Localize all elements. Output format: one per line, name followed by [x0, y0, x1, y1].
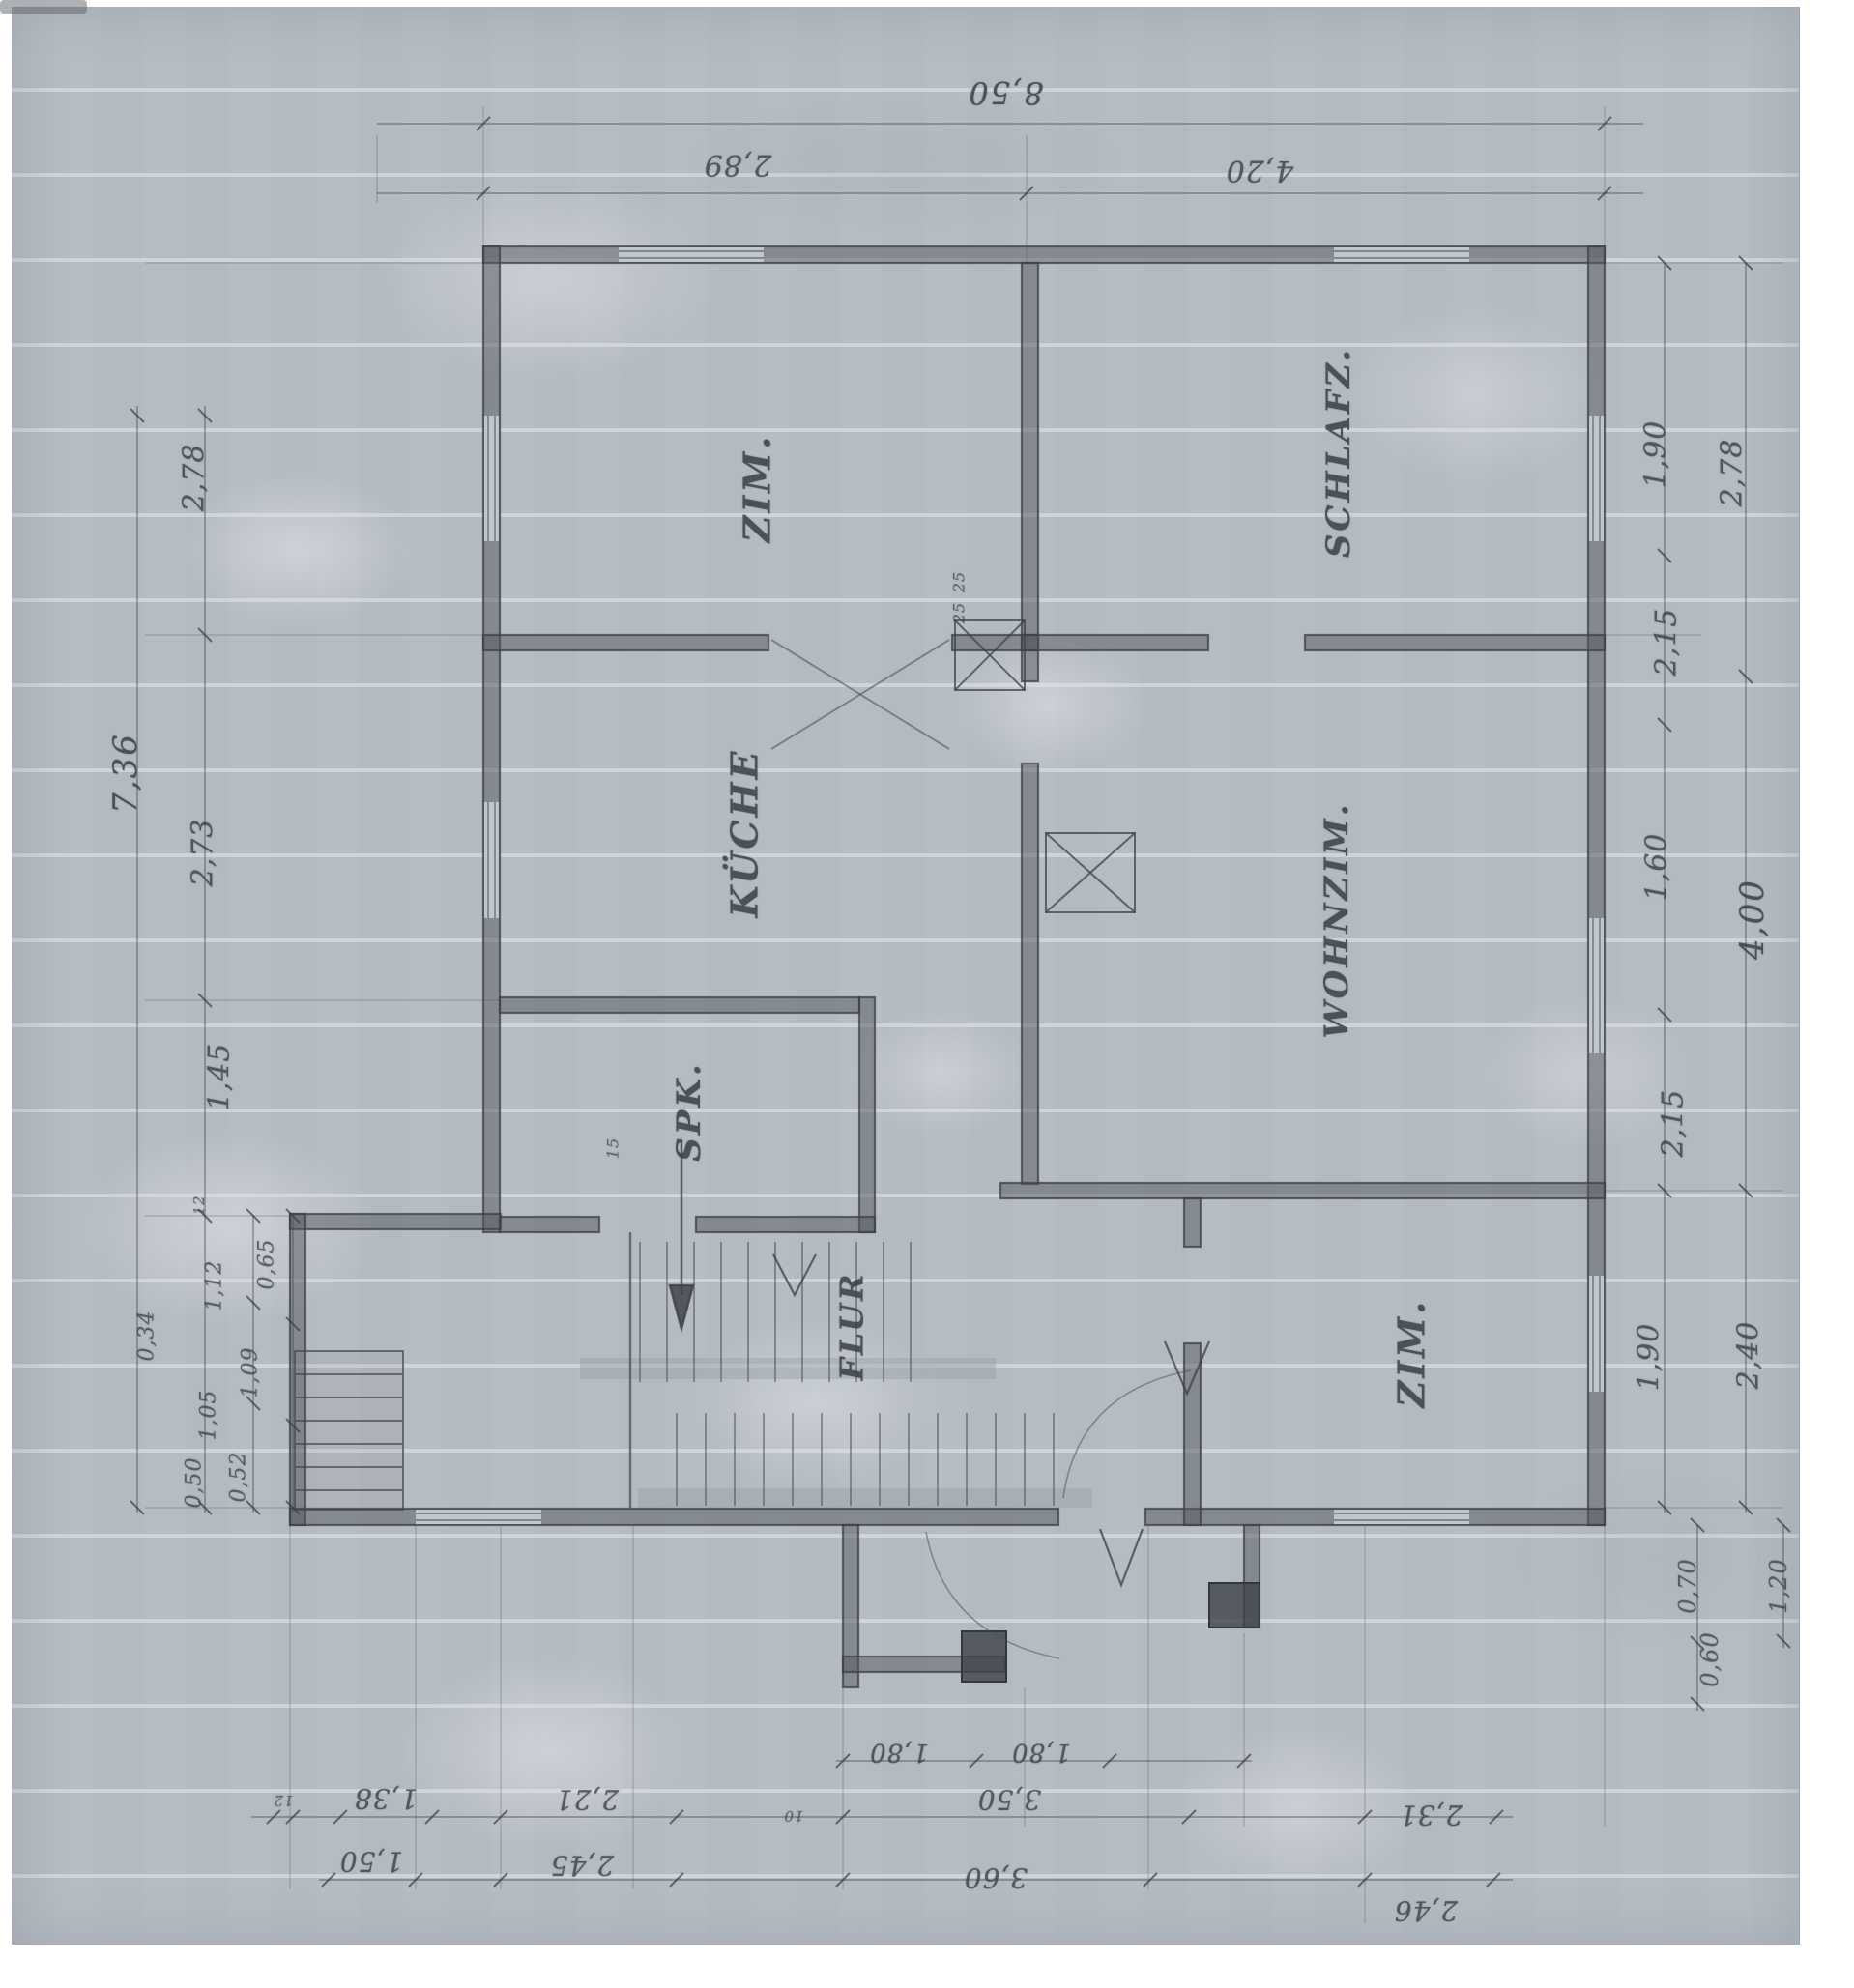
room-label-speisekammer: SPK. — [670, 1061, 709, 1162]
dim-bottom-3: 2,21 — [555, 1784, 619, 1816]
dim-left-6: 1,05 — [197, 1390, 221, 1441]
dim-right-8: 0,70 — [1674, 1558, 1701, 1613]
dim-left-11: 12 — [190, 1195, 208, 1215]
dim-bottom-2: 1,38 — [354, 1783, 418, 1815]
dim-right-5: 2,15 — [1657, 1089, 1691, 1158]
dim-bottom-7: 2,45 — [550, 1850, 614, 1882]
room-label-wohnzimmer: WOHNZIM. — [1318, 801, 1356, 1038]
dim-left-9: 1,09 — [239, 1347, 263, 1398]
dim-porch-1: 1,80 — [869, 1738, 929, 1767]
dim-top-right: 4,20 — [1226, 154, 1294, 187]
dim-right-1: 1,90 — [1639, 420, 1673, 489]
dim-right-7: 2,40 — [1732, 1321, 1766, 1390]
room-label-kueche: KÜCHE — [723, 749, 767, 918]
dim-left-10: 0,52 — [227, 1452, 251, 1503]
labels-layer: ZIM.SCHLAFZ.KÜCHEWOHNZIM.SPK.FLURZIM.8,5… — [0, 0, 1854, 1988]
dim-right-6: 1,90 — [1633, 1323, 1666, 1392]
dim-left-total: 7,36 — [106, 733, 145, 814]
dim-right-2: 2,78 — [1716, 439, 1750, 507]
dim-right-4: 1,60 — [1640, 833, 1674, 902]
dim-bottom-8: 3,60 — [964, 1862, 1028, 1894]
dim-bottom-5: 2,31 — [1399, 1800, 1463, 1831]
room-label-zimmer-bottom: ZIM. — [1390, 1299, 1434, 1408]
scanned-floor-plan-page: ZIM.SCHLAFZ.KÜCHEWOHNZIM.SPK.FLURZIM.8,5… — [0, 0, 1854, 1988]
dim-top-left: 2,89 — [704, 148, 772, 182]
dim-left-2: 2,73 — [187, 819, 220, 887]
dim-pillar-2: 25 — [950, 602, 969, 623]
dim-right-3: 2,15 — [1650, 608, 1684, 677]
dim-left-5: 1,12 — [203, 1260, 227, 1311]
dim-left-4: 0,34 — [135, 1311, 159, 1362]
room-label-schlafzimmer: SCHLAFZ. — [1319, 347, 1358, 558]
dim-stair-count: 15 — [604, 1138, 623, 1159]
dim-left-8: 0,65 — [255, 1239, 279, 1290]
dim-bottom-4: 3,50 — [977, 1784, 1041, 1816]
dim-bottom-1: 12 — [273, 1792, 293, 1809]
dim-bottom-10: 10 — [783, 1807, 803, 1825]
dim-right-10: 0,60 — [1696, 1631, 1724, 1686]
dim-right-9: 1,20 — [1765, 1558, 1792, 1613]
dim-right-total: 4,00 — [1733, 879, 1772, 960]
dim-left-3: 1,45 — [203, 1043, 237, 1111]
dim-top-total: 8,50 — [967, 74, 1043, 111]
dim-left-1: 2,78 — [178, 444, 212, 512]
dim-porch-2: 1,80 — [1011, 1738, 1071, 1767]
dim-bottom-9: 2,46 — [1394, 1895, 1458, 1927]
dim-pillar-1: 25 — [950, 571, 969, 592]
dim-left-7: 0,50 — [183, 1457, 207, 1509]
dim-bottom-6: 1,50 — [339, 1846, 403, 1878]
room-label-zimmer-top: ZIM. — [736, 434, 779, 543]
room-label-flur: FLUR — [833, 1271, 871, 1380]
